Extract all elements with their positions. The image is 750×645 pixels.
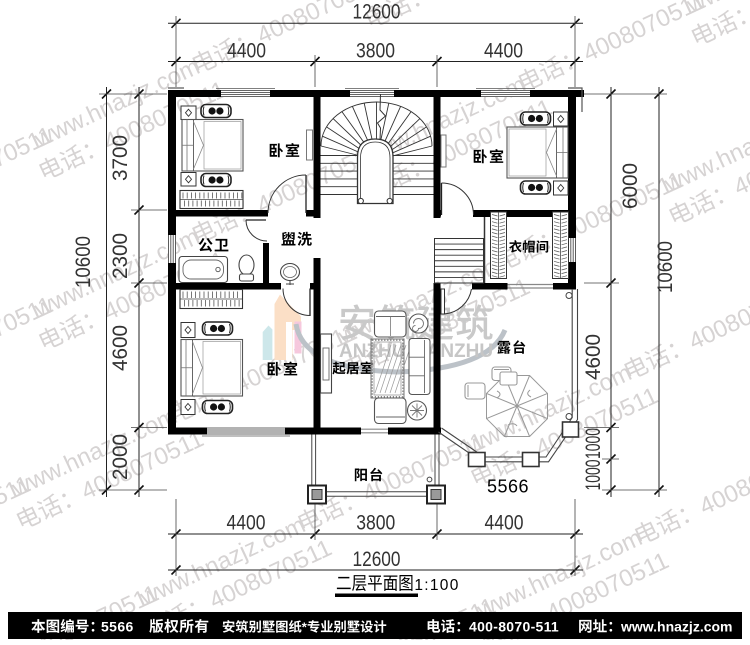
svg-text:12600: 12600: [353, 1, 401, 24]
svg-text:www.hnazjz.com: www.hnazjz.com: [620, 619, 733, 635]
svg-text:2000: 2000: [109, 434, 132, 480]
svg-text:4400: 4400: [485, 512, 524, 535]
svg-text:10600: 10600: [72, 236, 95, 288]
svg-text:1000: 1000: [582, 428, 605, 459]
svg-text:3700: 3700: [109, 135, 132, 181]
svg-text:5566: 5566: [487, 477, 529, 497]
svg-text:4600: 4600: [109, 325, 132, 371]
svg-text:4600: 4600: [582, 334, 605, 380]
svg-text:10600: 10600: [654, 241, 677, 293]
svg-text:4400: 4400: [227, 512, 266, 535]
svg-text:1:100: 1:100: [414, 577, 459, 594]
svg-text:3800: 3800: [356, 40, 395, 63]
svg-text:6000: 6000: [619, 163, 642, 209]
svg-text:400-8070-511: 400-8070-511: [469, 619, 559, 635]
svg-text:3800: 3800: [356, 512, 395, 535]
svg-text:1000: 1000: [582, 460, 605, 491]
svg-text:4400: 4400: [227, 40, 266, 63]
svg-text:4400: 4400: [484, 40, 523, 63]
svg-text:2300: 2300: [109, 233, 132, 279]
svg-text:12600: 12600: [353, 548, 401, 571]
svg-text:5566: 5566: [101, 619, 134, 635]
